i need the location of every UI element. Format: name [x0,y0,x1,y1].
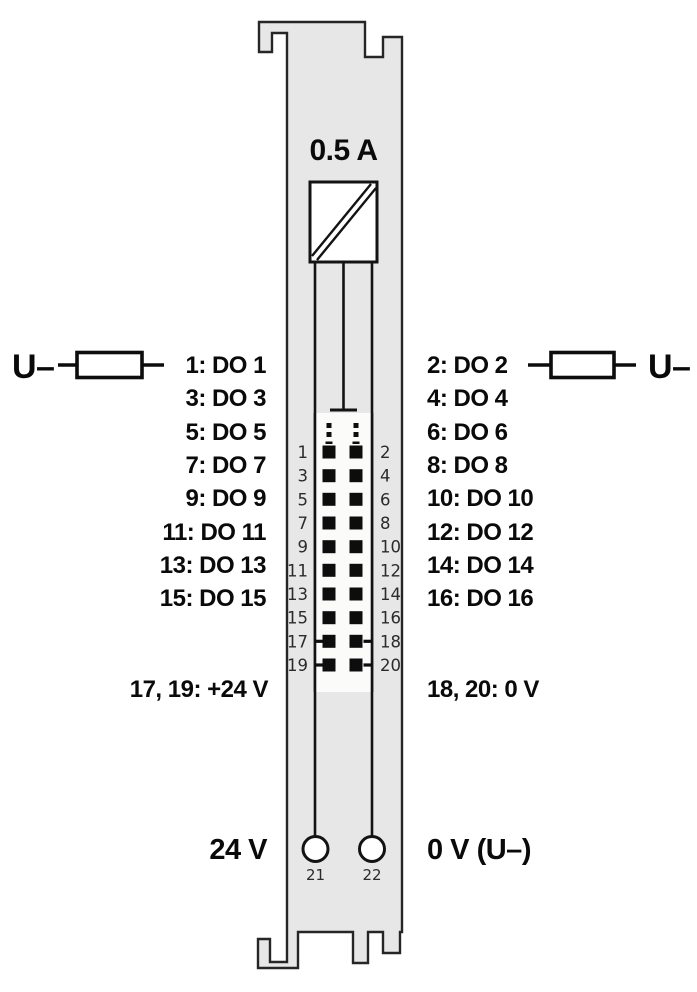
output-label: 15: DO 15 [160,585,266,612]
pin-number: 7 [298,514,309,533]
output-label: 4: DO 4 [427,385,509,412]
output-label: 11: DO 11 [162,519,266,546]
pin-number: 4 [380,467,391,486]
pin-number: 9 [298,538,309,557]
output-label: 1: DO 1 [185,352,266,379]
output-label: 2: DO 2 [427,352,508,379]
output-label: 13: DO 13 [160,552,266,579]
terminal-number: 21 [306,866,325,884]
pin-number: 2 [380,443,391,462]
load-symbol-left [77,353,142,378]
pin-contact [323,659,336,672]
pin-contact [350,517,363,530]
pin-number: 16 [380,609,401,628]
pin-number: 17 [287,632,308,651]
power-label-left: 17, 19: +24 V [130,676,269,703]
output-label: 7: DO 7 [185,452,266,479]
connector-key-dot [354,432,359,437]
connector-key-dot [354,423,359,428]
pin-number: 13 [287,585,308,604]
supply-label-left: 24 V [209,834,268,866]
pin-number: 5 [298,490,309,509]
wiring-diagram: 0.5 A 1 3 5 7 9 11 13 15 17 19 [0,0,697,992]
output-label: 3: DO 3 [185,385,266,412]
pin-contact [350,540,363,553]
pin-number: 18 [380,632,401,651]
pin-contact [350,564,363,577]
connector-key-dot [326,442,333,445]
module-diagram-canvas: 0.5 A 1 3 5 7 9 11 13 15 17 19 [0,0,697,992]
pin-number: 8 [380,514,391,533]
pin-number: 11 [287,561,308,580]
pin-contact [323,540,336,553]
pin-number: 19 [287,656,308,675]
pin-number: 1 [298,443,309,462]
pin-number: 20 [380,656,401,675]
output-label: 14: DO 14 [427,552,534,579]
u-minus-label-left: U– [12,348,54,386]
pin-number: 14 [380,585,401,604]
supply-label-right: 0 V (U–) [427,834,531,866]
power-label-right: 18, 20: 0 V [427,676,539,703]
load-symbol-right [551,353,614,378]
terminal-number: 22 [362,866,381,884]
pin-number: 12 [380,561,401,580]
pin-contact [350,635,363,648]
connector-key-dot [327,432,332,437]
connector-key-dot [327,423,332,428]
fuse-symbol-box [310,182,377,262]
pin-number: 3 [298,467,309,486]
output-label: 8: DO 8 [427,452,508,479]
terminal-21-circle [303,837,328,862]
output-label: 12: DO 12 [427,519,533,546]
pin-contact [323,611,336,624]
pin-contact [323,588,336,601]
pin-contact [323,635,336,648]
output-label: 16: DO 16 [427,585,533,612]
terminal-22-circle [360,837,385,862]
pin-contact [323,493,336,506]
connector-key-dot [353,442,360,445]
pin-contact [323,517,336,530]
output-label: 9: DO 9 [185,485,266,512]
pin-contact [350,469,363,482]
pin-number: 6 [380,490,391,509]
pin-contact [350,659,363,672]
pin-contact [350,611,363,624]
pin-contact [323,564,336,577]
pin-contact [350,493,363,506]
pin-contact [350,588,363,601]
pin-contact [323,469,336,482]
output-label: 6: DO 6 [427,419,508,446]
u-minus-label-right: U– [648,348,690,386]
pin-number: 10 [380,538,401,557]
pin-contact [350,446,363,459]
output-label: 5: DO 5 [185,419,266,446]
pin-number: 15 [287,609,308,628]
pin-contact [323,446,336,459]
fuse-rating-label: 0.5 A [309,134,377,167]
output-label: 10: DO 10 [427,485,533,512]
